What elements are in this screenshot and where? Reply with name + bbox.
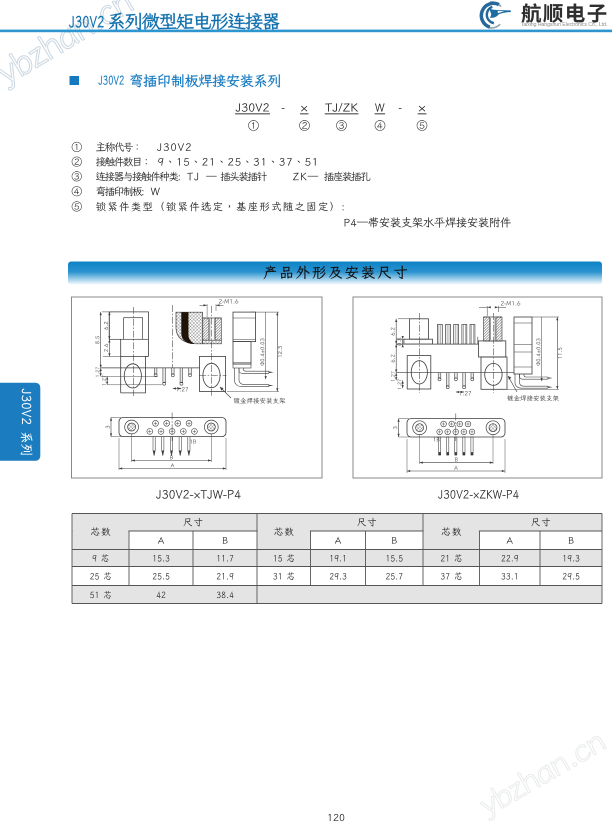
svg-text:Taixing Hangshun Electronics C: Taixing Hangshun Electronics Co., Ltd.: [521, 22, 608, 28]
